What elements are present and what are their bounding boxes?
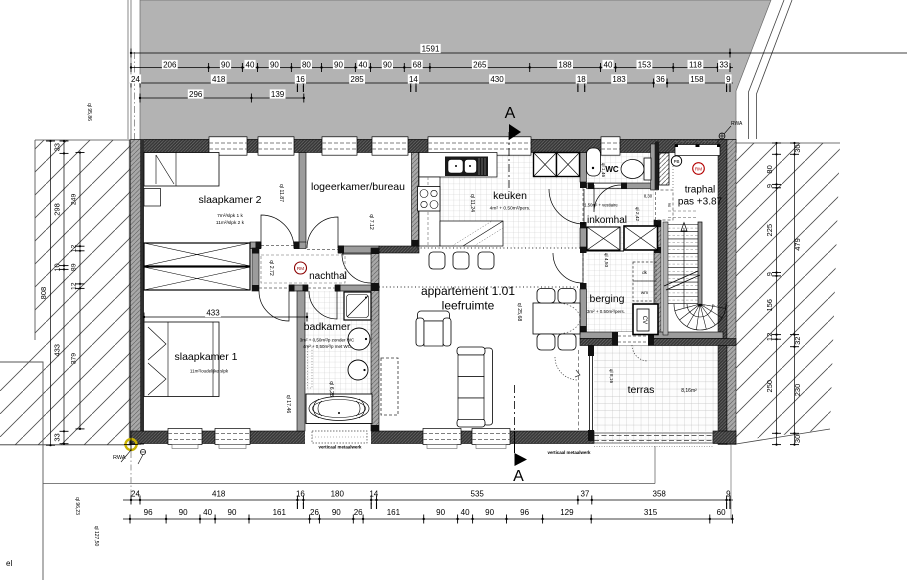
svg-text:WC: WC	[605, 165, 619, 174]
svg-text:badkamer: badkamer	[304, 321, 351, 333]
svg-text:ql 8,16: ql 8,16	[608, 369, 614, 384]
svg-text:logeerkamer/bureau: logeerkamer/bureau	[311, 181, 405, 193]
svg-text:ql 17.46: ql 17.46	[285, 395, 291, 414]
svg-text:161: 161	[387, 508, 401, 517]
svg-text:9: 9	[765, 272, 774, 276]
svg-text:90: 90	[270, 61, 279, 70]
svg-text:ql 7.12: ql 7.12	[368, 214, 374, 230]
svg-text:16: 16	[296, 490, 305, 499]
svg-text:terras: terras	[628, 384, 655, 396]
svg-text:ql 96,23: ql 96,23	[74, 497, 80, 515]
svg-text:206: 206	[163, 61, 177, 70]
svg-text:9: 9	[765, 184, 774, 188]
svg-text:379: 379	[71, 353, 78, 365]
svg-text:90: 90	[436, 508, 445, 517]
svg-text:RWA: RWA	[113, 455, 126, 461]
svg-text:dk: dk	[642, 270, 648, 275]
svg-text:225: 225	[765, 224, 774, 237]
svg-text:12: 12	[71, 245, 78, 253]
svg-text:418: 418	[212, 75, 226, 84]
svg-text:verticaal metaalwerk: verticaal metaalwerk	[319, 445, 363, 450]
svg-text:60: 60	[717, 508, 726, 517]
svg-text:CV: CV	[641, 316, 647, 324]
svg-text:37: 37	[580, 490, 589, 499]
svg-text:el: el	[6, 559, 12, 568]
svg-text:pas +3.87: pas +3.87	[678, 197, 723, 208]
svg-text:PB: PB	[674, 159, 680, 164]
svg-text:315: 315	[644, 508, 658, 517]
svg-text:265: 265	[473, 61, 487, 70]
svg-text:9: 9	[726, 490, 731, 499]
svg-text:3m² + 0,50m²/p zonder WC: 3m² + 0,50m²/p zonder WC	[300, 338, 355, 343]
svg-text:ql 127,50: ql 127,50	[93, 526, 99, 547]
svg-text:A: A	[505, 105, 516, 122]
svg-text:verticaal metaalwerk: verticaal metaalwerk	[548, 450, 592, 455]
svg-text:90: 90	[179, 508, 188, 517]
svg-text:808: 808	[39, 287, 48, 300]
svg-text:traphal: traphal	[685, 185, 716, 196]
svg-text:90: 90	[334, 61, 343, 70]
svg-text:12: 12	[765, 333, 774, 341]
svg-text:40: 40	[203, 508, 212, 517]
svg-text:wm: wm	[641, 290, 648, 295]
svg-text:ql 6,28: ql 6,28	[328, 381, 334, 397]
svg-text:ql 95,86: ql 95,86	[86, 103, 92, 121]
svg-text:33: 33	[53, 143, 62, 151]
svg-text:4m² + 0,50m²/p met WC: 4m² + 0,50m²/p met WC	[303, 344, 352, 349]
svg-text:90: 90	[228, 508, 237, 517]
svg-text:11m²/oudelijke slpk: 11m²/oudelijke slpk	[190, 369, 229, 374]
svg-text:296: 296	[189, 90, 203, 99]
svg-text:129: 129	[560, 508, 574, 517]
svg-text:40: 40	[461, 508, 470, 517]
svg-text:161: 161	[273, 508, 287, 517]
svg-text:90: 90	[667, 203, 671, 207]
svg-text:26: 26	[354, 508, 363, 517]
svg-text:26: 26	[310, 508, 319, 517]
svg-text:8,30: 8,30	[644, 194, 653, 199]
svg-text:ql 11,24: ql 11,24	[469, 194, 475, 212]
svg-text:479: 479	[793, 238, 802, 251]
svg-text:33: 33	[53, 433, 62, 441]
svg-text:430: 430	[490, 75, 504, 84]
svg-text:9: 9	[726, 75, 731, 84]
svg-text:30: 30	[793, 435, 802, 443]
svg-text:inkomhal: inkomhal	[587, 215, 627, 226]
svg-text:40: 40	[358, 61, 367, 70]
svg-text:358: 358	[653, 490, 667, 499]
svg-text:158: 158	[690, 75, 704, 84]
svg-text:96: 96	[144, 508, 153, 517]
svg-text:285: 285	[350, 75, 364, 84]
svg-text:188: 188	[558, 61, 572, 70]
svg-text:418: 418	[212, 490, 226, 499]
svg-text:139: 139	[271, 90, 285, 99]
svg-text:appartement 1.01: appartement 1.01	[421, 284, 515, 298]
svg-text:18: 18	[577, 75, 586, 84]
svg-text:249: 249	[71, 194, 78, 206]
svg-text:ql 11.87: ql 11.87	[278, 184, 284, 202]
svg-text:8,16m²: 8,16m²	[681, 388, 697, 394]
svg-text:250: 250	[765, 380, 774, 393]
svg-text:12: 12	[71, 282, 78, 290]
svg-text:10: 10	[53, 263, 62, 271]
svg-text:3m² + 0.50m²/pers.: 3m² + 0.50m²/pers.	[587, 309, 625, 314]
svg-text:33: 33	[719, 61, 728, 70]
svg-text:7m²/slpk 1 k: 7m²/slpk 1 k	[217, 213, 243, 219]
svg-text:ql 4,50: ql 4,50	[603, 253, 609, 268]
svg-text:80: 80	[765, 165, 774, 173]
svg-text:32: 32	[793, 337, 802, 345]
svg-text:slaapkamer 2: slaapkamer 2	[198, 194, 261, 206]
svg-text:11m²/slpk 2 k: 11m²/slpk 2 k	[216, 220, 245, 226]
svg-text:230: 230	[793, 384, 802, 397]
svg-text:ql 1,46: ql 1,46	[600, 163, 606, 178]
svg-text:RM: RM	[695, 167, 702, 172]
svg-text:535: 535	[471, 490, 485, 499]
svg-text:RWA: RWA	[731, 121, 743, 127]
svg-text:24: 24	[131, 75, 140, 84]
svg-text:14: 14	[369, 490, 378, 499]
svg-text:89: 89	[71, 263, 78, 271]
svg-text:90: 90	[221, 61, 230, 70]
svg-text:36: 36	[656, 75, 665, 84]
svg-text:90: 90	[485, 508, 494, 517]
svg-text:nachthal: nachthal	[309, 271, 347, 282]
svg-text:433: 433	[53, 344, 62, 357]
svg-text:40: 40	[604, 61, 613, 70]
svg-text:433: 433	[206, 309, 220, 318]
svg-text:183: 183	[612, 75, 626, 84]
svg-text:96: 96	[520, 508, 529, 517]
svg-text:118: 118	[689, 61, 702, 70]
svg-text:180: 180	[331, 490, 345, 499]
svg-text:24: 24	[131, 490, 140, 499]
svg-text:ql 2,42: ql 2,42	[634, 207, 640, 222]
svg-text:298: 298	[53, 203, 62, 216]
svg-text:ql 25,68: ql 25,68	[516, 303, 522, 322]
svg-text:1.50m² + vestiaire: 1.50m² + vestiaire	[584, 203, 618, 208]
svg-text:A: A	[513, 468, 524, 485]
svg-text:40: 40	[246, 61, 255, 70]
svg-text:RM: RM	[297, 266, 304, 271]
svg-text:30: 30	[793, 144, 802, 152]
svg-text:90: 90	[332, 508, 341, 517]
svg-text:80: 80	[302, 61, 311, 70]
svg-text:1591: 1591	[422, 45, 440, 54]
svg-text:4m² + 0.50m²/pers.: 4m² + 0.50m²/pers.	[490, 206, 531, 212]
svg-text:68: 68	[413, 61, 422, 70]
svg-text:leefruimte: leefruimte	[442, 299, 495, 313]
svg-text:berging: berging	[589, 293, 624, 305]
svg-text:16: 16	[296, 75, 305, 84]
svg-text:14: 14	[409, 75, 418, 84]
svg-text:90: 90	[383, 61, 392, 70]
svg-text:156: 156	[765, 299, 774, 312]
svg-text:slaapkamer 1: slaapkamer 1	[174, 351, 237, 363]
svg-text:keuken: keuken	[493, 190, 527, 202]
svg-text:153: 153	[638, 61, 652, 70]
svg-text:ql 2.72: ql 2.72	[268, 260, 274, 276]
